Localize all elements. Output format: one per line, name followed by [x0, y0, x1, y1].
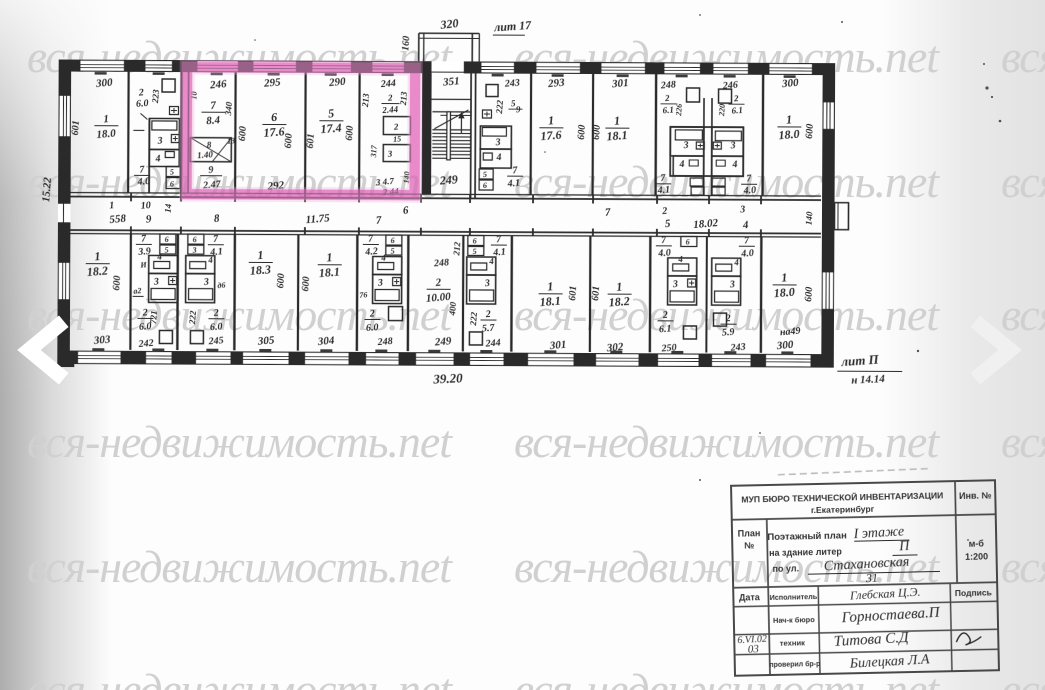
svg-text:5: 5	[390, 246, 395, 255]
svg-text:222: 222	[494, 99, 505, 115]
svg-text:г.Екатеринбург: г.Екатеринбург	[811, 504, 875, 515]
svg-text:План: План	[738, 528, 761, 538]
svg-text:76: 76	[359, 290, 368, 300]
svg-text:3: 3	[729, 140, 736, 151]
svg-text:Инв. №: Инв. №	[959, 490, 992, 501]
svg-text:13: 13	[227, 136, 236, 146]
svg-text:2: 2	[212, 308, 219, 319]
svg-text:340: 340	[223, 101, 234, 117]
svg-text:6.1: 6.1	[659, 323, 672, 335]
svg-text:лит 17: лит 17	[493, 18, 533, 35]
svg-text:вся-недвижимость.net: вся-недвижимость.net	[27, 541, 453, 592]
svg-text:213: 213	[360, 93, 371, 109]
svg-text:212: 212	[451, 241, 462, 257]
svg-text:2.44: 2.44	[381, 104, 399, 115]
svg-text:248: 248	[376, 336, 393, 348]
svg-text:246: 246	[209, 78, 228, 91]
svg-text:6: 6	[685, 237, 690, 246]
svg-text:2: 2	[661, 206, 668, 217]
svg-text:400: 400	[447, 301, 458, 317]
svg-text:6.1: 6.1	[731, 105, 743, 116]
svg-text:1: 1	[326, 250, 333, 264]
svg-text:д6: д6	[217, 280, 226, 290]
svg-text:6: 6	[271, 110, 278, 124]
svg-text:304: 304	[316, 335, 335, 348]
svg-text:4.0: 4.0	[740, 248, 754, 260]
svg-text:вся-недвижимость.net: вся-недвижимость.net	[1001, 31, 1045, 82]
svg-text:15.22: 15.22	[40, 176, 54, 202]
svg-text:213: 213	[398, 91, 409, 107]
svg-text:18.0: 18.0	[96, 127, 117, 141]
svg-text:6: 6	[192, 235, 197, 244]
svg-text:31: 31	[864, 571, 878, 586]
svg-text:вся-недвижимость.net: вся-недвижимость.net	[27, 416, 453, 467]
svg-text:3: 3	[728, 279, 735, 290]
svg-text:290: 290	[328, 76, 347, 89]
svg-text:17.6: 17.6	[540, 127, 562, 143]
svg-text:245: 245	[207, 335, 224, 347]
svg-text:600: 600	[803, 286, 815, 302]
svg-text:4.0: 4.0	[136, 176, 150, 188]
svg-text:601: 601	[590, 285, 602, 301]
svg-text:4: 4	[678, 159, 685, 170]
svg-text:600: 600	[237, 126, 249, 142]
svg-text:300: 300	[95, 77, 114, 90]
svg-text:на здание литер: на здание литер	[769, 546, 842, 558]
svg-text:4: 4	[154, 153, 161, 164]
svg-text:2: 2	[137, 87, 144, 98]
svg-text:3: 3	[156, 135, 163, 146]
svg-text:I этаже: I этаже	[852, 524, 904, 542]
svg-text:6: 6	[170, 179, 175, 188]
svg-text:3: 3	[203, 277, 210, 288]
svg-text:3: 3	[682, 140, 689, 151]
svg-text:249: 249	[438, 172, 458, 188]
svg-text:222: 222	[468, 311, 479, 327]
svg-text:2: 2	[724, 313, 731, 324]
svg-text:18.2: 18.2	[608, 294, 630, 310]
svg-text:вся-недвижимость.net: вся-недвижимость.net	[1001, 416, 1045, 467]
svg-text:1: 1	[786, 112, 793, 126]
svg-text:6.0: 6.0	[366, 322, 379, 334]
svg-text:2: 2	[368, 308, 375, 319]
svg-text:223: 223	[150, 89, 161, 105]
svg-text:249: 249	[433, 335, 452, 348]
svg-text:5: 5	[164, 245, 169, 254]
svg-text:5: 5	[472, 247, 477, 256]
svg-text:17.6: 17.6	[263, 124, 285, 140]
svg-text:305: 305	[256, 334, 275, 347]
svg-text:5.9: 5.9	[722, 327, 735, 339]
svg-text:вся-недвижимость.net: вся-недвижимость.net	[1001, 541, 1045, 592]
svg-text:244: 244	[379, 78, 396, 90]
svg-text:6: 6	[472, 236, 477, 245]
svg-text:П: П	[898, 539, 911, 555]
svg-text:317: 317	[369, 144, 379, 159]
svg-text:248: 248	[659, 79, 676, 91]
svg-text:600: 600	[275, 273, 287, 289]
svg-text:м-б: м-б	[969, 538, 985, 548]
svg-text:244: 244	[484, 337, 501, 349]
svg-text:300: 300	[775, 339, 794, 352]
svg-text:2: 2	[141, 307, 148, 318]
svg-text:600: 600	[300, 276, 312, 292]
svg-text:140: 140	[803, 211, 814, 226]
svg-text:1: 1	[257, 248, 264, 262]
svg-text:4: 4	[731, 159, 738, 170]
svg-text:лит П: лит П	[840, 352, 880, 370]
svg-text:18.1: 18.1	[318, 264, 340, 280]
svg-text:4: 4	[495, 152, 502, 163]
svg-text:301: 301	[611, 77, 629, 90]
svg-text:техник: техник	[780, 638, 806, 648]
svg-text:18.0: 18.0	[773, 285, 795, 301]
svg-text:601: 601	[567, 285, 579, 301]
svg-text:18.3: 18.3	[249, 262, 271, 278]
svg-text:39.20: 39.20	[432, 370, 463, 386]
svg-text:3: 3	[739, 204, 746, 215]
svg-text:по ул.: по ул.	[772, 563, 799, 574]
svg-text:вся-недвижимость.net: вся-недвижимость.net	[1001, 156, 1045, 207]
svg-text:1.40: 1.40	[197, 149, 214, 160]
svg-text:18.1: 18.1	[539, 293, 561, 309]
svg-text:а2: а2	[133, 286, 142, 296]
svg-text:351: 351	[442, 75, 460, 88]
svg-text:226: 226	[674, 103, 684, 117]
svg-text:Подпись: Подпись	[955, 587, 992, 598]
svg-text:03: 03	[748, 643, 760, 656]
svg-text:1: 1	[547, 279, 554, 293]
svg-text:2: 2	[661, 310, 668, 321]
svg-text:303: 303	[92, 334, 111, 347]
svg-text:5: 5	[328, 106, 335, 120]
svg-text:8.4: 8.4	[206, 114, 221, 127]
svg-text:3: 3	[153, 276, 160, 287]
svg-text:160: 160	[400, 36, 412, 52]
svg-text:721: 721	[148, 310, 159, 324]
svg-text:246: 246	[721, 80, 738, 92]
svg-text:5: 5	[170, 167, 175, 176]
svg-text:600: 600	[804, 123, 816, 139]
svg-text:18.2: 18.2	[86, 263, 108, 279]
svg-text:300: 300	[781, 77, 800, 90]
svg-text:№: №	[744, 540, 754, 550]
svg-text:220: 220	[717, 104, 727, 118]
svg-text:5: 5	[483, 170, 488, 179]
svg-text:1: 1	[548, 113, 555, 127]
svg-text:600: 600	[344, 125, 356, 141]
svg-text:проверил бр-р: проверил бр-р	[769, 660, 820, 669]
svg-text:вся-недвижимость.net: вся-недвижимость.net	[514, 416, 940, 467]
svg-text:18.1: 18.1	[606, 128, 628, 144]
svg-text:Дата: Дата	[739, 592, 761, 602]
svg-text:1:200: 1:200	[965, 551, 988, 561]
svg-text:248: 248	[433, 257, 450, 269]
svg-text:6: 6	[483, 181, 488, 190]
svg-text:558: 558	[109, 213, 127, 226]
svg-text:6.0: 6.0	[210, 321, 223, 333]
svg-text:4.0: 4.0	[742, 185, 756, 197]
svg-text:5.7: 5.7	[482, 322, 496, 334]
svg-text:6: 6	[164, 235, 169, 244]
svg-text:9: 9	[208, 165, 214, 176]
svg-text:1: 1	[109, 200, 115, 211]
svg-text:600: 600	[283, 133, 295, 149]
svg-text:3: 3	[191, 246, 197, 255]
svg-text:242: 242	[137, 338, 154, 350]
svg-text:293: 293	[547, 77, 566, 90]
svg-text:10: 10	[140, 200, 151, 212]
svg-text:18.02: 18.02	[693, 217, 719, 231]
svg-text:15: 15	[393, 134, 402, 144]
svg-text:1: 1	[614, 113, 621, 127]
svg-text:вся-недвижимость.net: вся-недвижимость.net	[27, 664, 453, 690]
svg-text:Нач-к бюро: Нач-к бюро	[773, 615, 815, 625]
svg-text:2: 2	[484, 309, 491, 320]
svg-text:на49: на49	[780, 326, 801, 339]
svg-text:3: 3	[483, 278, 490, 289]
svg-text:301: 301	[548, 339, 566, 352]
svg-text:14: 14	[163, 203, 174, 213]
svg-text:3: 3	[494, 137, 501, 148]
svg-text:11.75: 11.75	[305, 212, 331, 226]
svg-text:18.0: 18.0	[778, 127, 800, 143]
svg-text:вся-недвижимость.net: вся-недвижимость.net	[1001, 289, 1045, 340]
svg-text:1: 1	[616, 279, 623, 293]
svg-text:600: 600	[111, 275, 123, 291]
svg-text:Исполнитель: Исполнитель	[770, 592, 818, 602]
svg-text:6.0: 6.0	[136, 98, 149, 110]
svg-text:601: 601	[305, 133, 317, 149]
svg-text:н 14.14: н 14.14	[851, 373, 886, 387]
svg-text:6.1: 6.1	[662, 104, 674, 115]
svg-text:600: 600	[576, 124, 588, 140]
svg-text:1: 1	[781, 270, 788, 284]
svg-text:3: 3	[671, 279, 678, 290]
svg-text:295: 295	[263, 76, 282, 89]
svg-text:6: 6	[390, 236, 395, 245]
svg-text:243: 243	[503, 78, 520, 90]
svg-text:вся-недвижимость.net: вся-недвижимость.net	[1001, 664, 1045, 690]
svg-text:601: 601	[70, 120, 82, 136]
svg-text:320: 320	[439, 16, 459, 32]
svg-text:1: 1	[94, 249, 101, 263]
svg-text:222: 222	[187, 310, 198, 326]
svg-text:4.1: 4.1	[656, 184, 670, 196]
svg-text:3: 3	[376, 277, 383, 288]
svg-text:17.4: 17.4	[320, 120, 342, 136]
svg-text:600: 600	[591, 124, 603, 140]
svg-text:Поэтажный план: Поэтажный план	[767, 530, 847, 543]
svg-text:1: 1	[103, 113, 109, 125]
svg-text:4.1: 4.1	[506, 178, 520, 190]
